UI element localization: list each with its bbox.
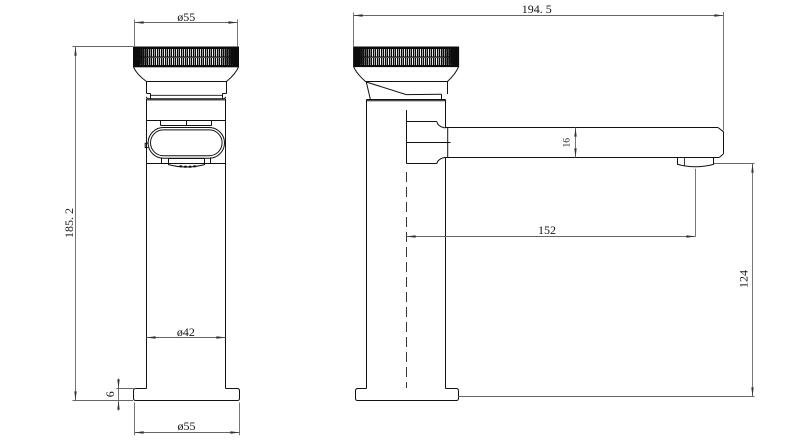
svg-text:152: 152 xyxy=(538,223,556,237)
svg-text:16: 16 xyxy=(562,138,572,148)
svg-text:ø42: ø42 xyxy=(177,325,195,339)
svg-text:ø55: ø55 xyxy=(177,10,195,24)
svg-text:185. 2: 185. 2 xyxy=(62,208,76,238)
svg-text:194. 5: 194. 5 xyxy=(522,2,552,16)
svg-text:124: 124 xyxy=(737,270,751,288)
svg-text:6: 6 xyxy=(103,391,117,397)
svg-text:ø55: ø55 xyxy=(178,419,196,433)
